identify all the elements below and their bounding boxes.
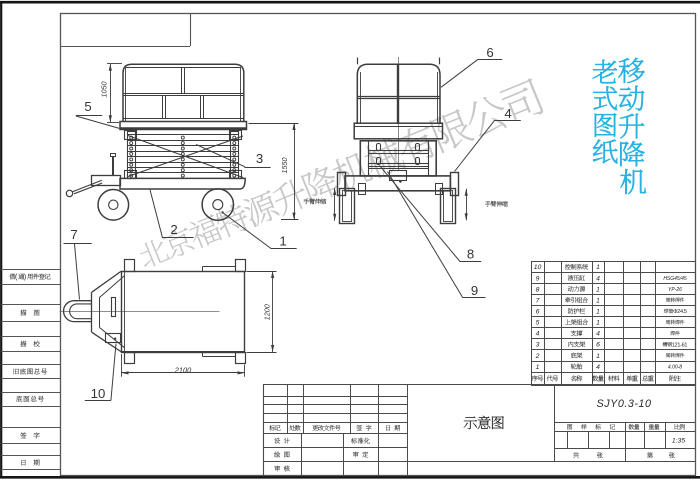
- svg-text:3: 3: [536, 342, 540, 349]
- svg-text:Φ24.5: Φ24.5: [673, 309, 687, 315]
- svg-text:SJY0.3-10: SJY0.3-10: [597, 398, 652, 410]
- svg-text:4: 4: [596, 364, 600, 371]
- svg-text:10: 10: [91, 386, 106, 401]
- svg-text:2: 2: [535, 353, 540, 360]
- svg-text:6: 6: [596, 342, 600, 349]
- svg-text:HSG45/45: HSG45/45: [663, 276, 687, 282]
- svg-text:9: 9: [536, 275, 540, 282]
- svg-text:(: (: [15, 274, 18, 281]
- svg-text:4: 4: [596, 331, 600, 338]
- svg-text:4.00-8: 4.00-8: [668, 364, 682, 370]
- svg-text:1200: 1200: [263, 304, 272, 320]
- svg-text:8: 8: [536, 286, 540, 293]
- svg-text:6: 6: [536, 308, 540, 315]
- svg-text:3: 3: [256, 151, 263, 166]
- svg-text:1: 1: [596, 286, 600, 293]
- svg-text:1: 1: [596, 308, 600, 315]
- svg-text:10: 10: [534, 264, 542, 271]
- svg-text:2100: 2100: [174, 365, 192, 374]
- svg-text:1: 1: [596, 264, 600, 271]
- svg-text:1050: 1050: [99, 82, 108, 98]
- svg-text:1: 1: [596, 353, 600, 360]
- svg-text:2: 2: [170, 222, 177, 237]
- svg-text:7: 7: [70, 227, 77, 242]
- svg-text:1: 1: [536, 364, 540, 371]
- svg-text:1: 1: [279, 234, 286, 249]
- svg-text:1: 1: [596, 320, 600, 327]
- svg-text:1550: 1550: [280, 158, 289, 174]
- svg-text:4: 4: [504, 106, 511, 121]
- svg-text:1:35: 1:35: [672, 438, 685, 445]
- svg-text:): ): [24, 274, 26, 281]
- svg-text:7: 7: [536, 297, 540, 304]
- svg-text:9: 9: [471, 283, 478, 298]
- svg-text:YP-26: YP-26: [668, 287, 682, 293]
- svg-text:121-61: 121-61: [672, 342, 688, 348]
- svg-text:4: 4: [596, 275, 600, 282]
- svg-text:1: 1: [596, 297, 600, 304]
- svg-text:5: 5: [84, 99, 91, 114]
- svg-text:4: 4: [536, 331, 540, 338]
- svg-text:5: 5: [536, 320, 540, 327]
- svg-text:6: 6: [486, 45, 493, 60]
- svg-text:8: 8: [467, 247, 474, 262]
